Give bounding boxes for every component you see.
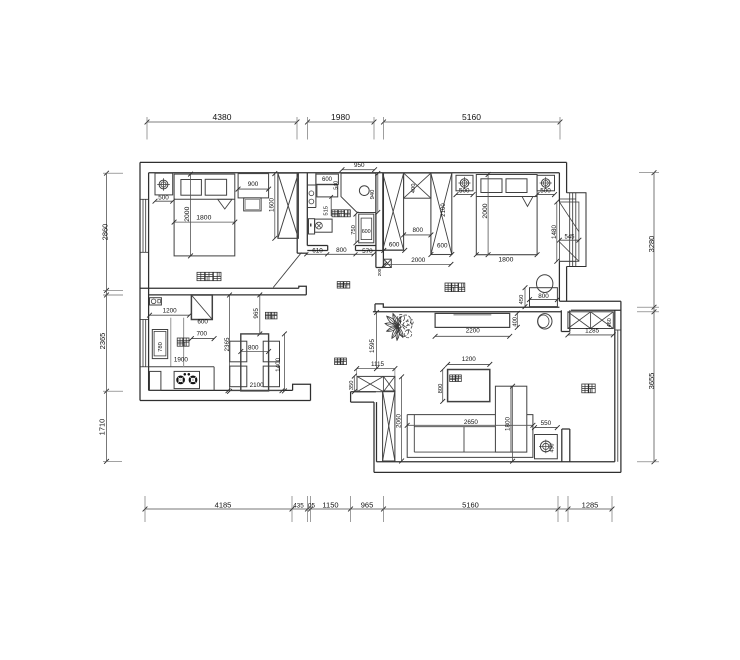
svg-text:750: 750 — [351, 225, 357, 235]
svg-text:515: 515 — [323, 206, 329, 216]
svg-text:800: 800 — [248, 345, 259, 352]
svg-text:600: 600 — [197, 318, 208, 325]
svg-text:600: 600 — [362, 229, 371, 235]
svg-text:3655: 3655 — [647, 373, 656, 390]
svg-text:800: 800 — [538, 293, 549, 300]
svg-text:540: 540 — [334, 181, 340, 190]
svg-text:1150: 1150 — [322, 501, 338, 510]
svg-text:2860: 2860 — [101, 224, 110, 241]
svg-text:2100: 2100 — [250, 382, 265, 389]
svg-text:2650: 2650 — [464, 419, 479, 426]
svg-text:500: 500 — [459, 187, 470, 194]
svg-text:700: 700 — [197, 331, 208, 338]
svg-text:550: 550 — [541, 420, 552, 427]
svg-text:545: 545 — [564, 234, 575, 240]
svg-text:610: 610 — [312, 248, 323, 255]
svg-text:1800: 1800 — [498, 256, 513, 263]
svg-text:450: 450 — [550, 444, 556, 453]
svg-text:800: 800 — [336, 247, 347, 254]
svg-text:1800: 1800 — [196, 214, 211, 221]
svg-text:435: 435 — [293, 503, 304, 510]
svg-text:1400: 1400 — [275, 357, 282, 372]
svg-text:1200: 1200 — [163, 307, 178, 314]
svg-text:600: 600 — [437, 242, 448, 249]
svg-text:800: 800 — [412, 227, 423, 234]
svg-text:1285: 1285 — [585, 328, 600, 335]
svg-text:1900: 1900 — [174, 357, 189, 364]
svg-text:1480: 1480 — [551, 225, 558, 240]
svg-text:4185: 4185 — [215, 501, 232, 510]
svg-text:600: 600 — [389, 242, 400, 249]
svg-text:2000: 2000 — [184, 206, 191, 221]
svg-text:1200: 1200 — [462, 356, 477, 363]
svg-text:1980: 1980 — [331, 112, 350, 122]
svg-text:450: 450 — [519, 295, 525, 305]
svg-text:4380: 4380 — [213, 112, 232, 122]
svg-text:2000: 2000 — [411, 257, 426, 264]
svg-text:2000: 2000 — [482, 203, 489, 218]
svg-text:2365: 2365 — [98, 333, 107, 350]
svg-text:05: 05 — [308, 503, 316, 510]
svg-text:500: 500 — [158, 195, 169, 202]
svg-text:3280: 3280 — [647, 236, 656, 253]
svg-text:500: 500 — [540, 187, 551, 194]
svg-text:940: 940 — [370, 190, 376, 200]
svg-text:965: 965 — [253, 308, 260, 319]
svg-text:1800: 1800 — [505, 417, 512, 432]
svg-text:570: 570 — [362, 248, 373, 255]
svg-text:2060: 2060 — [395, 414, 402, 429]
svg-text:1595: 1595 — [369, 339, 376, 354]
svg-text:2200: 2200 — [466, 328, 481, 335]
svg-text:5160: 5160 — [462, 501, 479, 510]
svg-text:2100: 2100 — [441, 203, 447, 217]
svg-text:800: 800 — [438, 384, 444, 394]
svg-text:460: 460 — [607, 318, 613, 327]
svg-text:600: 600 — [322, 177, 333, 183]
svg-text:400: 400 — [512, 317, 518, 327]
svg-text:200: 200 — [377, 268, 382, 276]
svg-text:950: 950 — [354, 162, 365, 169]
svg-text:965: 965 — [361, 501, 374, 510]
svg-text:1600: 1600 — [269, 198, 276, 213]
svg-text:5160: 5160 — [462, 112, 481, 122]
svg-text:350: 350 — [349, 381, 355, 391]
svg-text:900: 900 — [248, 181, 259, 188]
svg-text:780: 780 — [158, 342, 164, 352]
svg-text:1285: 1285 — [582, 501, 599, 510]
svg-text:400: 400 — [411, 184, 417, 194]
svg-text:1710: 1710 — [98, 419, 107, 436]
